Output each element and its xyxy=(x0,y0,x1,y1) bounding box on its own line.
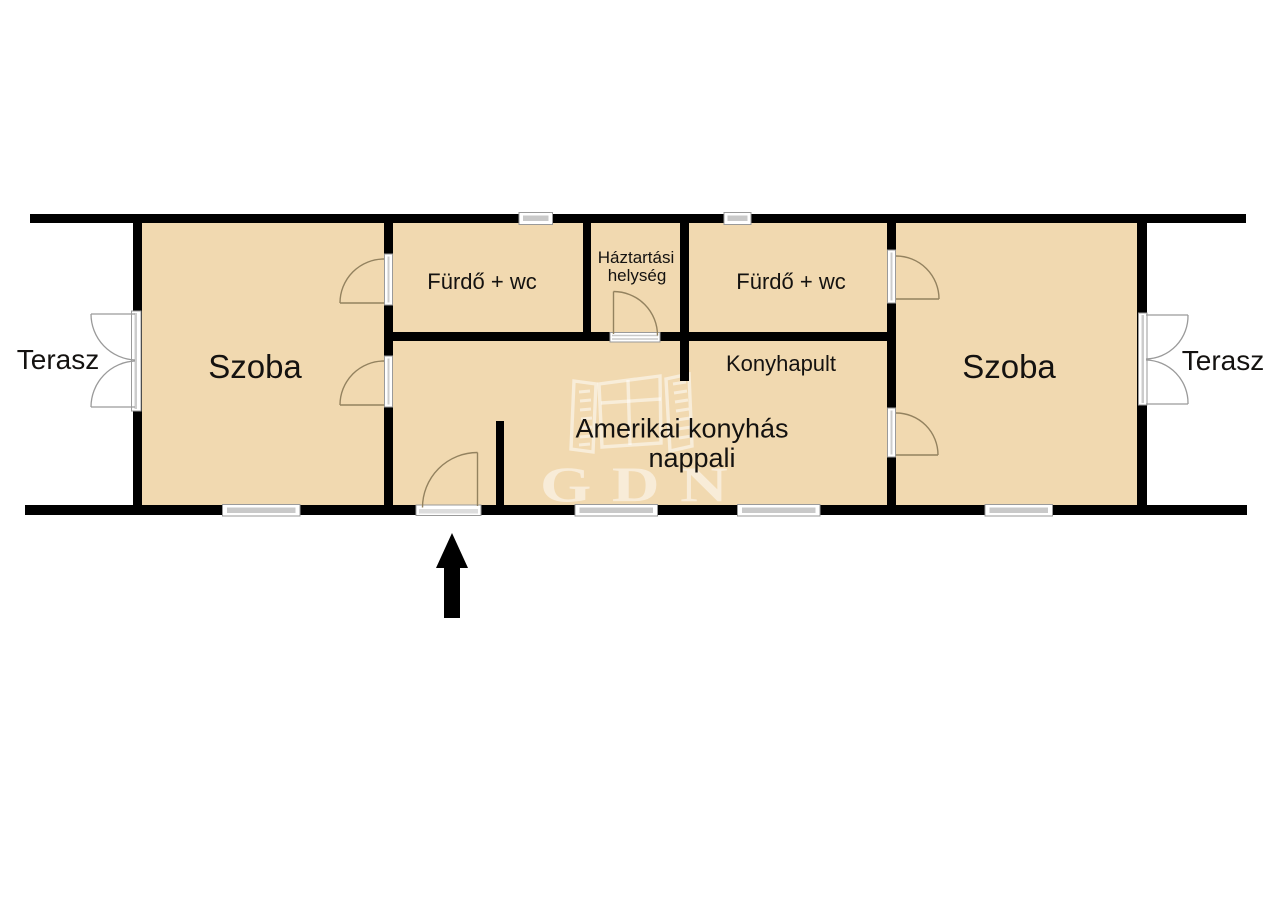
svg-text:Amerikai konyhás: Amerikai konyhás xyxy=(575,414,788,444)
svg-text:helység: helység xyxy=(608,266,667,285)
svg-text:Terasz: Terasz xyxy=(17,344,99,375)
svg-text:Konyhapult: Konyhapult xyxy=(726,351,836,376)
svg-text:Fürdő + wc: Fürdő + wc xyxy=(736,269,845,294)
svg-text:nappali: nappali xyxy=(648,443,735,473)
svg-text:Háztartási: Háztartási xyxy=(598,248,675,267)
svg-text:Szoba: Szoba xyxy=(962,348,1056,385)
svg-text:Fürdő + wc: Fürdő + wc xyxy=(427,269,536,294)
svg-text:Szoba: Szoba xyxy=(208,348,302,385)
svg-text:Terasz: Terasz xyxy=(1182,345,1264,376)
